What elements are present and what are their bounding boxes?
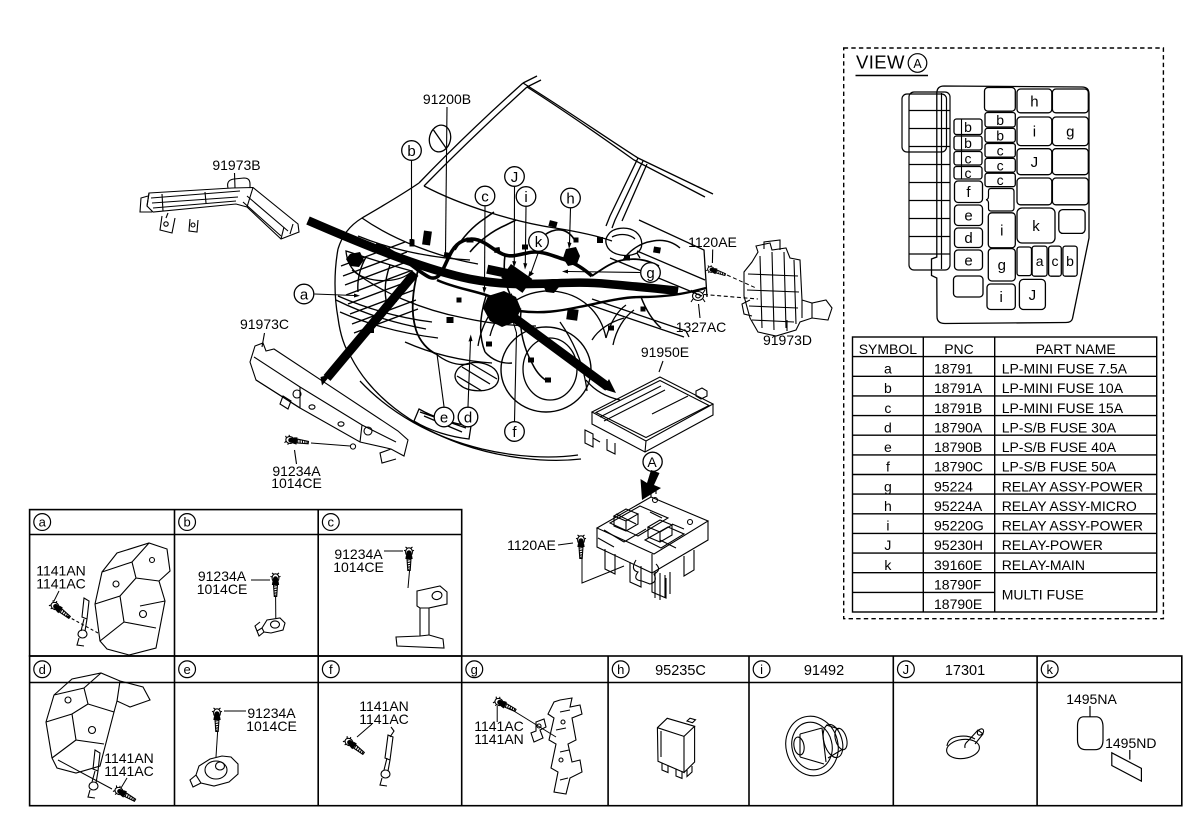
- svg-text:c: c: [997, 172, 1004, 188]
- svg-text:g: g: [471, 662, 478, 677]
- svg-text:c: c: [965, 165, 972, 181]
- svg-text:d: d: [964, 230, 972, 247]
- svg-text:e: e: [964, 252, 972, 269]
- svg-text:i: i: [1033, 124, 1036, 141]
- svg-text:g: g: [998, 257, 1006, 274]
- svg-text:1141AC: 1141AC: [359, 711, 409, 727]
- svg-text:18791: 18791: [934, 361, 973, 377]
- svg-text:RELAY ASSY-POWER: RELAY ASSY-POWER: [1002, 478, 1143, 494]
- svg-text:b: b: [964, 119, 972, 135]
- svg-text:95220G: 95220G: [934, 518, 984, 534]
- svg-text:RELAY ASSY-MICRO: RELAY ASSY-MICRO: [1002, 498, 1137, 514]
- svg-text:k: k: [1046, 662, 1053, 677]
- svg-text:i: i: [999, 289, 1002, 306]
- svg-text:b: b: [996, 127, 1004, 143]
- svg-text:RELAY-POWER: RELAY-POWER: [1002, 537, 1103, 553]
- svg-text:b: b: [996, 112, 1004, 128]
- svg-text:e: e: [440, 409, 448, 426]
- svg-text:95230H: 95230H: [934, 537, 983, 553]
- svg-text:J: J: [903, 662, 910, 677]
- svg-text:1495NA: 1495NA: [1066, 691, 1117, 707]
- svg-text:a: a: [1036, 253, 1044, 269]
- svg-text:h: h: [617, 662, 624, 677]
- svg-text:i: i: [524, 189, 527, 206]
- svg-text:J: J: [1029, 287, 1037, 304]
- svg-text:1141AC: 1141AC: [36, 576, 86, 592]
- svg-text:1120AE: 1120AE: [507, 537, 556, 553]
- svg-text:95224: 95224: [934, 478, 973, 494]
- svg-text:a: a: [300, 286, 309, 303]
- svg-text:h: h: [566, 190, 574, 207]
- svg-text:h: h: [1030, 93, 1038, 110]
- svg-text:i: i: [886, 518, 889, 534]
- svg-text:J: J: [511, 169, 519, 186]
- svg-text:g: g: [884, 478, 892, 494]
- svg-text:c: c: [481, 188, 489, 205]
- svg-text:c: c: [1051, 253, 1058, 269]
- svg-text:i: i: [760, 662, 763, 677]
- svg-text:1141AN: 1141AN: [474, 731, 524, 747]
- svg-text:18790E: 18790E: [934, 596, 982, 612]
- svg-text:95235C: 95235C: [655, 663, 706, 679]
- svg-text:d: d: [884, 419, 892, 435]
- svg-text:LP-MINI FUSE 7.5A: LP-MINI FUSE 7.5A: [1002, 361, 1128, 377]
- svg-text:b: b: [964, 135, 972, 151]
- svg-text:k: k: [535, 234, 543, 251]
- svg-text:c: c: [884, 400, 891, 416]
- svg-text:f: f: [886, 459, 890, 475]
- svg-text:18790C: 18790C: [934, 459, 983, 475]
- svg-text:g: g: [646, 265, 654, 282]
- svg-text:17301: 17301: [945, 663, 985, 679]
- svg-text:b: b: [407, 143, 415, 160]
- svg-text:1014CE: 1014CE: [271, 475, 322, 491]
- svg-text:91950E: 91950E: [641, 344, 689, 360]
- svg-text:c: c: [997, 157, 1004, 173]
- svg-text:LP-S/B FUSE 30A: LP-S/B FUSE 30A: [1002, 419, 1117, 435]
- svg-text:a: a: [884, 361, 892, 377]
- svg-text:f: f: [329, 662, 333, 677]
- svg-text:c: c: [997, 142, 1004, 158]
- svg-text:1120AE: 1120AE: [688, 234, 737, 250]
- svg-text:e: e: [964, 208, 972, 225]
- svg-text:91492: 91492: [804, 663, 844, 679]
- svg-text:c: c: [328, 515, 335, 530]
- svg-text:1141AC: 1141AC: [104, 763, 154, 779]
- svg-text:RELAY ASSY-POWER: RELAY ASSY-POWER: [1002, 518, 1143, 534]
- svg-text:91973B: 91973B: [212, 157, 260, 173]
- svg-text:k: k: [1032, 218, 1040, 235]
- svg-text:MULTI FUSE: MULTI FUSE: [1002, 586, 1084, 602]
- svg-text:91200B: 91200B: [423, 91, 471, 107]
- svg-text:LP-S/B FUSE 40A: LP-S/B FUSE 40A: [1002, 439, 1117, 455]
- svg-text:h: h: [884, 498, 892, 514]
- svg-text:SYMBOL: SYMBOL: [859, 341, 918, 357]
- svg-text:d: d: [464, 409, 472, 426]
- svg-text:1014CE: 1014CE: [197, 581, 248, 597]
- svg-text:18790F: 18790F: [934, 577, 981, 593]
- svg-text:18791A: 18791A: [934, 380, 983, 396]
- svg-text:k: k: [884, 557, 892, 573]
- svg-text:1014CE: 1014CE: [333, 559, 384, 575]
- svg-text:b: b: [183, 515, 190, 530]
- svg-text:95224A: 95224A: [934, 498, 983, 514]
- svg-text:91973C: 91973C: [240, 316, 289, 332]
- svg-text:a: a: [39, 515, 47, 530]
- svg-text:g: g: [1066, 124, 1074, 141]
- svg-text:PART NAME: PART NAME: [1036, 341, 1116, 357]
- svg-text:LP-MINI FUSE 15A: LP-MINI FUSE 15A: [1002, 400, 1124, 416]
- svg-text:LP-MINI FUSE 10A: LP-MINI FUSE 10A: [1002, 380, 1124, 396]
- svg-text:LP-S/B FUSE 50A: LP-S/B FUSE 50A: [1002, 459, 1117, 475]
- svg-text:b: b: [884, 380, 892, 396]
- svg-text:e: e: [884, 439, 892, 455]
- svg-text:b: b: [1066, 253, 1074, 269]
- svg-text:e: e: [183, 662, 190, 677]
- svg-text:A: A: [913, 57, 922, 71]
- svg-text:PNC: PNC: [944, 341, 974, 357]
- svg-text:18790B: 18790B: [934, 439, 982, 455]
- svg-text:1327AC: 1327AC: [676, 319, 727, 335]
- svg-text:VIEW: VIEW: [856, 52, 905, 73]
- svg-text:1014CE: 1014CE: [246, 718, 297, 734]
- svg-text:J: J: [1031, 154, 1039, 171]
- svg-text:39160E: 39160E: [934, 557, 982, 573]
- svg-text:18791B: 18791B: [934, 400, 982, 416]
- svg-text:18790A: 18790A: [934, 419, 983, 435]
- svg-text:i: i: [1000, 223, 1003, 240]
- svg-text:d: d: [39, 662, 46, 677]
- svg-text:J: J: [884, 537, 891, 553]
- svg-text:1495ND: 1495ND: [1105, 735, 1156, 751]
- svg-text:RELAY-MAIN: RELAY-MAIN: [1002, 557, 1085, 573]
- svg-text:A: A: [647, 454, 657, 470]
